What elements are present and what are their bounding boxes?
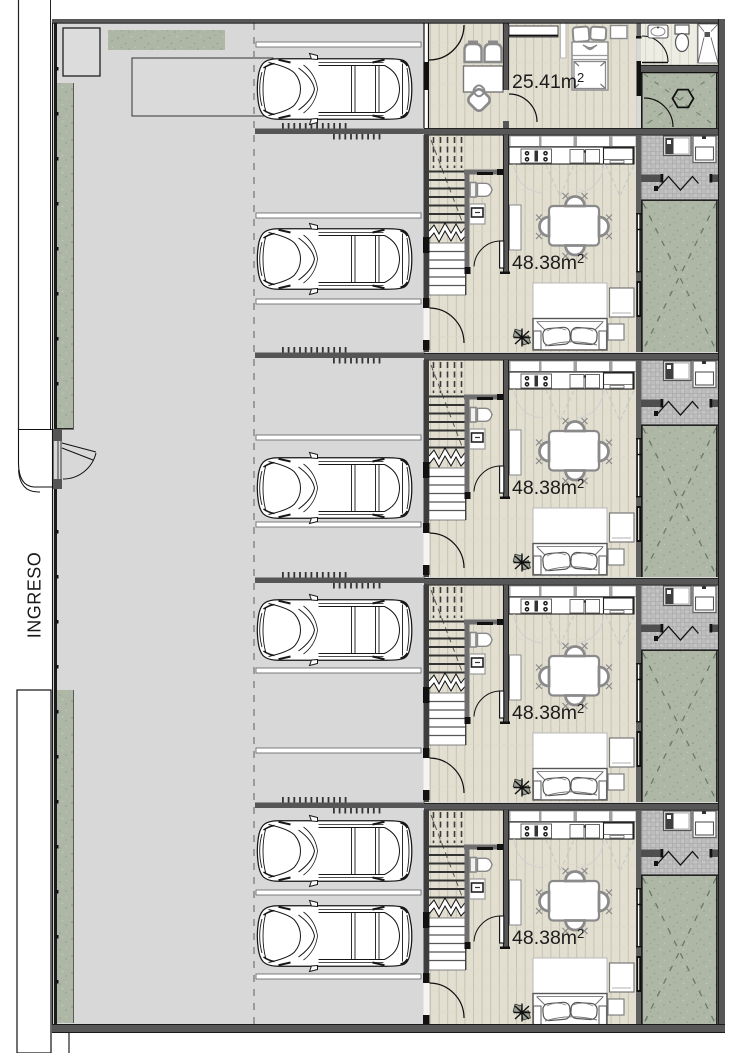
svg-text:INGRESO: INGRESO [25,552,45,639]
svg-text:25.41m2: 25.41m2 [512,70,584,93]
